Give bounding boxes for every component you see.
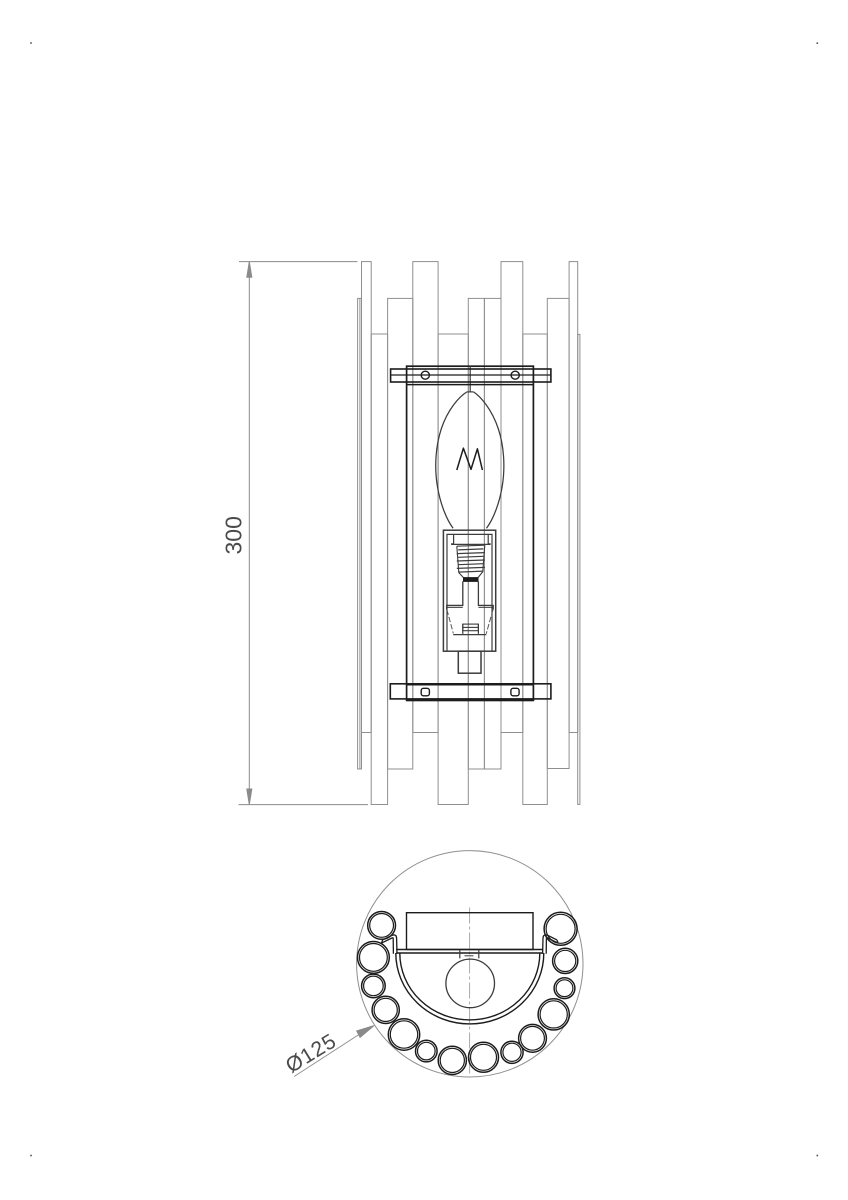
svg-text:Ø125: Ø125 [282, 1029, 341, 1077]
svg-text:300: 300 [221, 516, 247, 554]
